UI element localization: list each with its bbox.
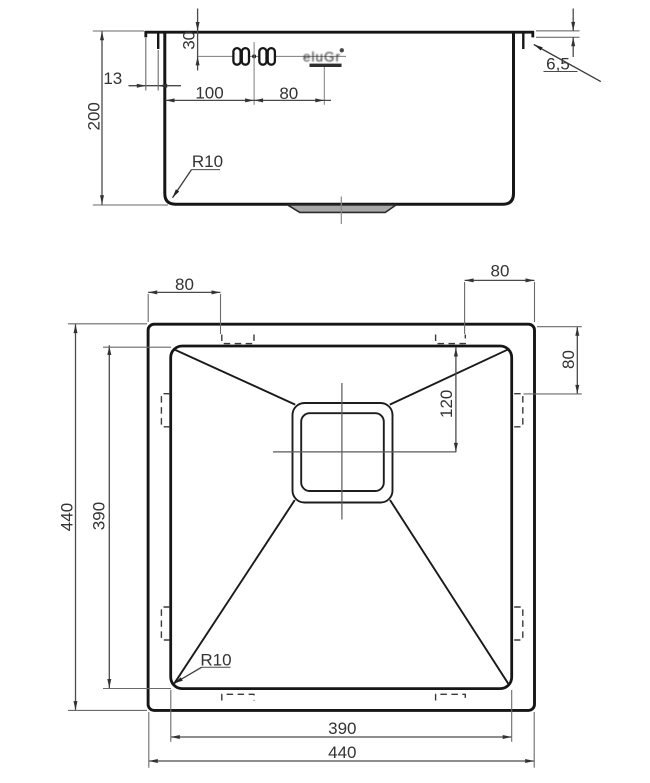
svg-text:120: 120 <box>437 390 456 418</box>
svg-text:R10: R10 <box>192 152 223 171</box>
svg-text:eluGr: eluGr <box>303 50 341 65</box>
svg-text:440: 440 <box>328 743 356 762</box>
svg-text:100: 100 <box>195 84 223 103</box>
svg-text:440: 440 <box>58 503 77 531</box>
svg-text:R10: R10 <box>200 651 231 670</box>
svg-text:390: 390 <box>328 719 356 738</box>
svg-text:80: 80 <box>559 350 578 369</box>
svg-text:13: 13 <box>103 69 122 88</box>
svg-text:80: 80 <box>175 275 194 294</box>
svg-text:80: 80 <box>491 262 510 281</box>
svg-text:80: 80 <box>279 84 298 103</box>
svg-text:390: 390 <box>90 502 109 530</box>
svg-text:200: 200 <box>85 102 104 130</box>
svg-text:30: 30 <box>180 31 199 50</box>
